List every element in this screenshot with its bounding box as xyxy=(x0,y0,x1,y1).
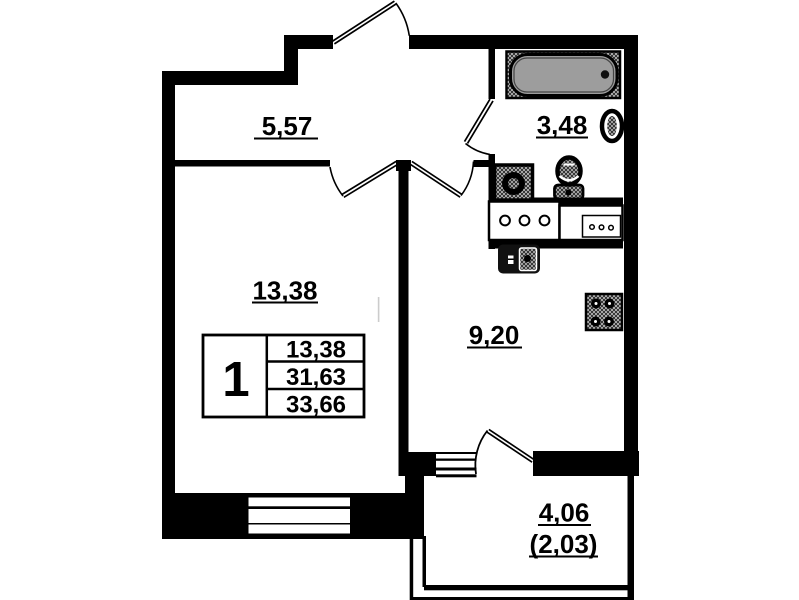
svg-text:9,20: 9,20 xyxy=(469,320,520,350)
svg-text:4,06: 4,06 xyxy=(539,498,590,528)
svg-text:1: 1 xyxy=(222,353,249,407)
svg-text:3,48: 3,48 xyxy=(537,110,588,140)
svg-text:13,38: 13,38 xyxy=(252,276,317,306)
svg-text:13,38: 13,38 xyxy=(286,337,346,364)
svg-text:31,63: 31,63 xyxy=(286,364,346,391)
svg-text:5,57: 5,57 xyxy=(262,111,313,141)
svg-text:(2,03): (2,03) xyxy=(530,529,598,559)
svg-text:33,66: 33,66 xyxy=(286,392,346,419)
